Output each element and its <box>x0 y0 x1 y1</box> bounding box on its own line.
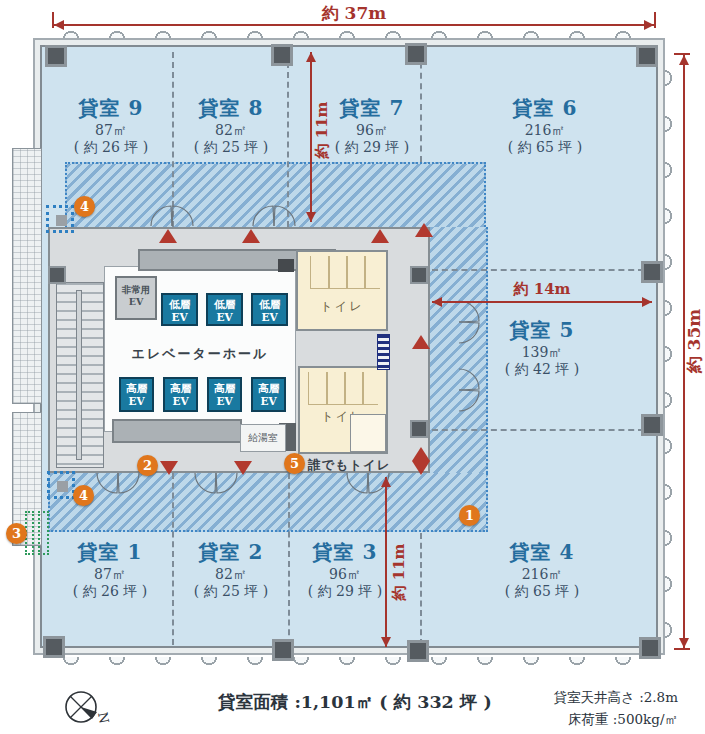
entrance-arrow-icon <box>160 461 178 475</box>
column <box>407 640 429 662</box>
entrance-arrow-icon <box>242 229 260 243</box>
window-band-bottom <box>48 657 648 666</box>
floor-load: 床荷重 :500kg/㎡ <box>518 711 678 729</box>
dimension-label-middle: 約 14m <box>432 280 652 299</box>
badge-3: 3 <box>6 523 27 544</box>
floor-plan: 非常用 EV 低層 EV 低層 EV 低層 EV エレベーターホール 高層 EV… <box>0 0 705 734</box>
riser-shaft <box>377 334 390 370</box>
low-rise-elevator: 低層 EV <box>161 293 198 326</box>
room-area: 82㎡ <box>171 122 291 139</box>
entrance-arrow-icon <box>412 335 430 349</box>
room-area: 216㎡ <box>485 122 605 139</box>
emergency-elevator: 非常用 EV <box>115 276 157 320</box>
accessible-toilet-label: 誰でもトイレ <box>308 457 390 474</box>
low-ev-label2: EV <box>208 311 241 324</box>
accessible-toilet-room <box>350 414 386 452</box>
high-ev-label2: EV <box>209 395 240 408</box>
toilet-stalls <box>308 372 378 405</box>
dim-tick <box>674 648 690 650</box>
badge-4-upper: 4 <box>74 196 95 217</box>
column <box>48 266 66 284</box>
dim-tick <box>654 12 656 28</box>
room-tsubo: ( 約 29 坪 ) <box>312 139 432 156</box>
room-tsubo: ( 約 25 坪 ) <box>171 139 291 156</box>
high-rise-elevator: 高層 EV <box>163 377 198 412</box>
room-tsubo: ( 約 26 坪 ) <box>50 583 170 600</box>
room-tsubo: ( 約 29 坪 ) <box>285 583 405 600</box>
ceiling-height: 貸室天井高さ :2.8m <box>518 689 678 707</box>
column <box>639 637 661 659</box>
shaft-block <box>278 259 294 272</box>
low-rise-elevator: 低層 EV <box>206 293 243 326</box>
room-name: 貸室 2 <box>171 540 291 564</box>
double-door-icon <box>96 472 140 494</box>
entrance-arrow-icon <box>412 447 430 461</box>
window-band-top <box>48 30 648 39</box>
high-ev-label: 高層 <box>209 382 240 395</box>
column <box>410 266 428 284</box>
room-area: 216㎡ <box>482 566 602 583</box>
marker-square-blue <box>47 471 75 499</box>
room-1: 貸室 1 87㎡ ( 約 26 坪 ) <box>50 540 170 600</box>
low-ev-label2: EV <box>253 311 286 324</box>
high-ev-label: 高層 <box>121 382 152 395</box>
room-area: 96㎡ <box>285 566 405 583</box>
room-tsubo: ( 約 65 坪 ) <box>485 139 605 156</box>
room-name: 貸室 6 <box>485 96 605 120</box>
column <box>271 44 293 66</box>
badge-1: 1 <box>459 505 480 526</box>
toilet-label: トイレ <box>298 298 386 315</box>
room-name: 貸室 7 <box>312 96 432 120</box>
column <box>43 636 65 658</box>
column <box>405 43 427 65</box>
high-ev-label2: EV <box>253 395 284 408</box>
total-rentable-area: 貸室面積 :1,101㎡ ( 約 332 坪 ) <box>200 690 510 714</box>
low-rise-elevator: 低層 EV <box>251 293 288 326</box>
dimension-label-top: 約 37m <box>54 2 654 25</box>
marker-core <box>57 481 68 492</box>
high-rise-elevator: 高層 EV <box>207 377 242 412</box>
room-name: 貸室 4 <box>482 540 602 564</box>
kitchenette: 給湯室 <box>240 424 286 452</box>
room-divider <box>432 429 644 431</box>
room-area: 87㎡ <box>51 122 171 139</box>
toilet-stalls <box>310 256 380 289</box>
badge-4-lower: 4 <box>73 485 94 506</box>
exterior-balcony-upper <box>12 148 42 404</box>
column <box>45 45 67 67</box>
double-door-icon <box>458 300 480 344</box>
low-ev-label: 低層 <box>163 298 196 311</box>
duct-bar-bottom <box>112 419 242 443</box>
marker-core <box>56 215 67 226</box>
room-3: 貸室 3 96㎡ ( 約 29 坪 ) <box>285 540 405 600</box>
elevator-hall-label: エレベーターホール <box>104 345 296 363</box>
column <box>641 414 663 436</box>
entrance-arrow-icon <box>412 461 430 475</box>
room-name: 貸室 9 <box>51 96 171 120</box>
north-compass-icon: N <box>58 686 110 732</box>
toilet-upper: トイレ <box>296 250 388 331</box>
room-4: 貸室 4 216㎡ ( 約 65 坪 ) <box>482 540 602 600</box>
low-ev-label2: EV <box>163 311 196 324</box>
high-ev-label2: EV <box>121 395 152 408</box>
room-2: 貸室 2 82㎡ ( 約 25 坪 ) <box>171 540 291 600</box>
window-band-right <box>664 55 673 640</box>
room-7: 貸室 7 96㎡ ( 約 29 坪 ) <box>312 96 432 156</box>
badge-2: 2 <box>137 455 158 476</box>
hatch-zone-right <box>430 227 488 473</box>
low-ev-label: 低層 <box>208 298 241 311</box>
double-door-icon <box>150 205 194 227</box>
double-door-icon <box>458 368 480 412</box>
marker-square-blue <box>46 205 74 233</box>
room-area: 87㎡ <box>50 566 170 583</box>
room-name: 貸室 1 <box>50 540 170 564</box>
room-tsubo: ( 約 42 坪 ) <box>482 361 602 378</box>
room-name: 貸室 5 <box>482 318 602 342</box>
column <box>410 420 428 438</box>
room-9: 貸室 9 87㎡ ( 約 26 坪 ) <box>51 96 171 156</box>
double-door-icon <box>252 205 296 227</box>
room-tsubo: ( 約 65 坪 ) <box>482 583 602 600</box>
high-ev-label: 高層 <box>253 382 284 395</box>
room-tsubo: ( 約 26 坪 ) <box>51 139 171 156</box>
room-divider <box>420 533 422 645</box>
column <box>272 639 294 661</box>
room-name: 貸室 8 <box>171 96 291 120</box>
high-ev-label2: EV <box>165 395 196 408</box>
dimension-arrow-middle <box>432 301 652 303</box>
badge-5: 5 <box>284 453 305 474</box>
room-8: 貸室 8 82㎡ ( 約 25 坪 ) <box>171 96 291 156</box>
room-tsubo: ( 約 25 坪 ) <box>171 583 291 600</box>
room-divider <box>432 269 644 271</box>
room-5: 貸室 5 139㎡ ( 約 42 坪 ) <box>482 318 602 378</box>
entrance-arrow-icon <box>415 223 433 237</box>
room-area: 96㎡ <box>312 122 432 139</box>
emergency-elevator-label: 非常用 <box>117 284 155 296</box>
room-area: 82㎡ <box>171 566 291 583</box>
north-label: N <box>95 711 110 725</box>
high-ev-label: 高層 <box>165 382 196 395</box>
stair-rail <box>76 290 82 460</box>
entrance-arrow-icon <box>371 229 389 243</box>
marker-strip-green <box>38 511 49 555</box>
dimension-label-right: 約 35m <box>683 301 701 381</box>
high-rise-elevator: 高層 EV <box>251 377 286 412</box>
room-name: 貸室 3 <box>285 540 405 564</box>
column <box>636 45 658 67</box>
emergency-elevator-label2: EV <box>117 296 155 308</box>
room-area: 139㎡ <box>482 344 602 361</box>
high-rise-elevator: 高層 EV <box>119 377 154 412</box>
double-door-icon <box>194 472 238 494</box>
room-6: 貸室 6 216㎡ ( 約 65 坪 ) <box>485 96 605 156</box>
entrance-arrow-icon <box>159 229 177 243</box>
low-ev-label: 低層 <box>253 298 286 311</box>
